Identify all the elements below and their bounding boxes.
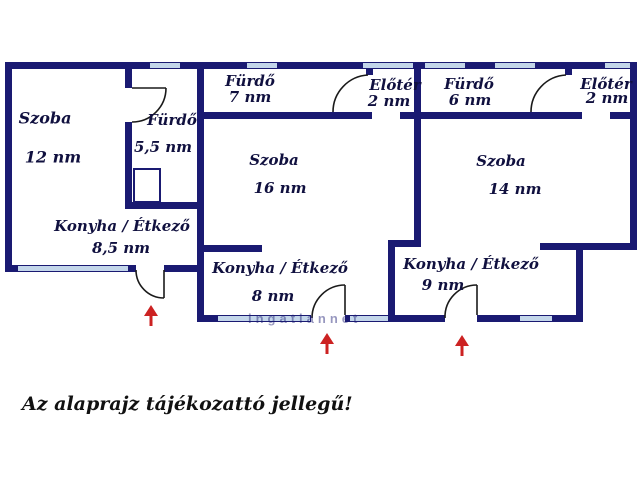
room-area-szoba-u2: 16 nm: [254, 179, 307, 197]
floor-plan: Szoba 12 nm Fürdő 5,5 nm Konyha / Étkező…: [0, 0, 640, 480]
room-name-szoba-u2: Szoba: [249, 151, 299, 169]
room-area-furdo-u2: 7 nm: [229, 88, 271, 106]
door-arc: [333, 75, 368, 112]
room-name-furdo-u1: Fürdő: [147, 111, 197, 129]
room-name-konyha-u3: Konyha / Étkező: [403, 255, 539, 273]
entrance-arrow-unit2: [320, 333, 334, 354]
room-area-konyha-u1: 8,5 nm: [92, 239, 150, 257]
room-name-szoba-u3: Szoba: [476, 152, 526, 170]
door-arc: [136, 270, 164, 298]
room-area-furdo-u1: 5,5 nm: [134, 138, 192, 156]
room-name-konyha-u2: Konyha / Étkező: [212, 259, 348, 277]
room-area-konyha-u3: 9 nm: [422, 276, 464, 294]
room-area-konyha-u2: 8 nm: [252, 287, 294, 305]
entrance-arrow-unit1: [144, 305, 158, 326]
room-area-eloter-u2: 2 nm: [368, 92, 410, 110]
door-arc: [531, 75, 566, 112]
entrance-arrow-unit3: [455, 335, 469, 356]
room-name-konyha-u1: Konyha / Étkező: [54, 217, 190, 235]
room-area-furdo-u3: 6 nm: [449, 91, 491, 109]
watermark: ingatlannet: [248, 311, 361, 326]
room-name-szoba-u1: Szoba: [19, 109, 72, 128]
room-area-szoba-u3: 14 nm: [489, 180, 542, 198]
disclaimer-note: Az alaprajz tájékozattó jellegű!: [22, 393, 353, 415]
room-area-eloter-u3: 2 nm: [586, 89, 628, 107]
room-area-szoba-u1: 12 nm: [25, 148, 81, 167]
